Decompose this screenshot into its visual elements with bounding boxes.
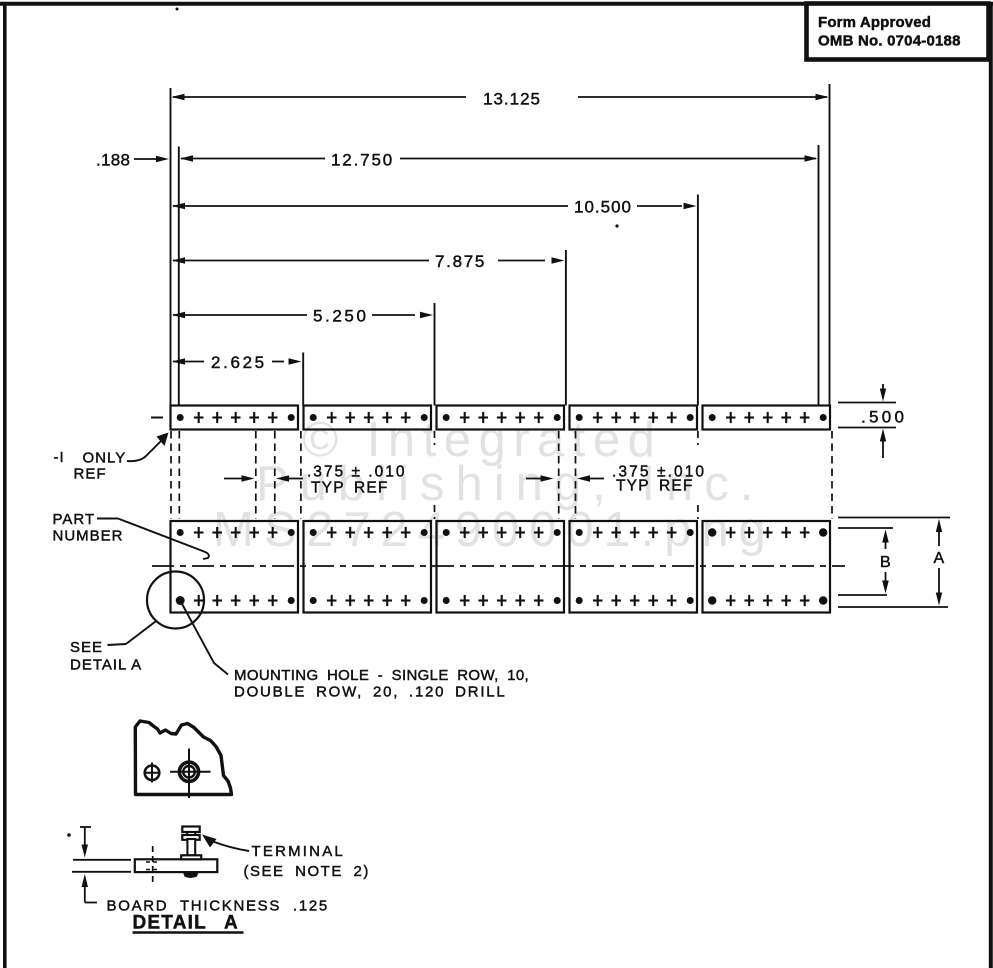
svg-text:Form Approved: Form Approved bbox=[818, 14, 931, 31]
svg-text:A: A bbox=[934, 550, 945, 567]
svg-text:.188: .188 bbox=[96, 151, 130, 170]
svg-text:DETAIL: DETAIL bbox=[133, 913, 207, 934]
svg-text:PART: PART bbox=[53, 511, 96, 528]
svg-text:.500: .500 bbox=[861, 408, 907, 427]
svg-text:REF: REF bbox=[74, 466, 107, 483]
svg-text:13.125: 13.125 bbox=[483, 90, 541, 109]
svg-text:(SEE NOTE 2): (SEE NOTE 2) bbox=[244, 863, 370, 880]
svg-text:12.750: 12.750 bbox=[331, 151, 394, 170]
svg-text:MOUNTING HOLE - SINGLE ROW, 10: MOUNTING HOLE - SINGLE ROW, 10, bbox=[234, 667, 529, 684]
svg-text:5.250: 5.250 bbox=[313, 307, 369, 326]
svg-text:TERMINAL: TERMINAL bbox=[252, 843, 345, 860]
svg-text:2.625: 2.625 bbox=[211, 353, 267, 372]
svg-text:ONLY: ONLY bbox=[83, 450, 127, 467]
svg-text:-I: -I bbox=[54, 449, 65, 466]
svg-text:A: A bbox=[224, 913, 239, 934]
svg-text:DETAIL A: DETAIL A bbox=[70, 657, 142, 674]
svg-text:.375 ± .010: .375 ± .010 bbox=[307, 464, 406, 481]
svg-text:7.875: 7.875 bbox=[435, 252, 486, 271]
svg-text:B: B bbox=[880, 554, 891, 571]
svg-text:10.500: 10.500 bbox=[574, 198, 632, 217]
svg-text:NUMBER: NUMBER bbox=[53, 528, 124, 545]
svg-text:DOUBLE ROW, 20, .120 DRILL: DOUBLE ROW, 20, .120 DRILL bbox=[234, 684, 506, 701]
svg-text:OMB No. 0704-0188: OMB No. 0704-0188 bbox=[818, 33, 961, 50]
svg-text:SEE: SEE bbox=[70, 639, 103, 656]
svg-text:TYP REF: TYP REF bbox=[311, 480, 389, 497]
svg-text:TYP REF: TYP REF bbox=[616, 478, 694, 495]
